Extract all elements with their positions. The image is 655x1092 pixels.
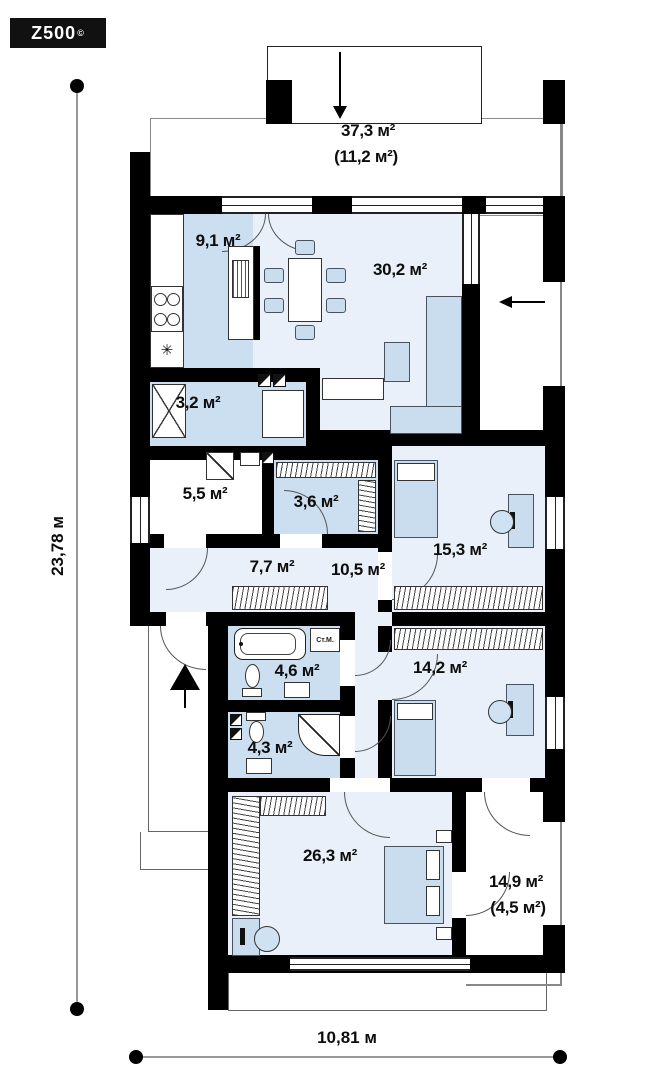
entrance-arrow-stem <box>339 52 341 106</box>
chair <box>326 268 346 283</box>
entrance-marker-stem <box>184 690 186 708</box>
wall <box>228 700 340 712</box>
room-label-living: 30,2 м² <box>373 260 427 280</box>
wall <box>228 778 330 792</box>
sink-icon <box>246 758 272 774</box>
room-label-hall: 7,7 м² <box>250 557 295 577</box>
room-label-master-bedroom: 26,3 м² <box>303 846 357 866</box>
porch-step-outline <box>140 832 208 870</box>
wall <box>340 686 355 716</box>
wall <box>262 460 274 544</box>
dimension-dot <box>70 79 84 93</box>
toilet-icon <box>245 664 260 688</box>
chair <box>295 240 315 255</box>
fridge-icon: ✳ <box>152 334 182 366</box>
toilet-tank <box>242 688 262 697</box>
riser-icon <box>230 728 242 740</box>
toilet-tank <box>246 712 266 721</box>
wall <box>462 284 480 432</box>
wall <box>206 612 340 626</box>
room-label-bedroom-1: 15,3 м² <box>433 540 487 560</box>
room-label-terrace-bottom: 14,9 м² <box>489 872 543 892</box>
wall <box>452 778 482 792</box>
wall <box>543 196 565 214</box>
room-label-pantry: 3,2 м² <box>176 393 221 413</box>
room-label-utility: 5,5 м² <box>183 484 228 504</box>
pillow <box>397 463 435 481</box>
side-entrance-arrow-stem <box>512 301 545 303</box>
wall <box>322 534 378 548</box>
nightstand <box>436 830 452 843</box>
office-chair <box>490 510 514 534</box>
riser-icon <box>230 714 242 726</box>
wall <box>462 196 486 214</box>
wall <box>452 792 466 872</box>
wardrobe-rail <box>394 586 543 610</box>
wall <box>543 386 565 432</box>
room-label-wardrobe: 3,6 м² <box>294 492 339 512</box>
wall <box>208 612 228 1010</box>
wall <box>266 80 292 124</box>
wardrobe-rail <box>232 796 260 916</box>
floor-plan: Z500© 23,78 м 10,81 м <box>0 0 655 1092</box>
pantry-unit <box>262 390 304 438</box>
riser-icon <box>273 374 286 387</box>
riser-icon <box>258 374 271 387</box>
pillow <box>397 703 433 720</box>
chair <box>326 298 346 313</box>
wall <box>392 612 565 626</box>
room-label-corridor: 10,5 м² <box>331 560 385 580</box>
side-entrance-arrow-icon <box>499 296 512 308</box>
bathtub-icon <box>234 628 306 660</box>
room-label-terrace-bottom-secondary: (4,5 м²) <box>490 898 546 918</box>
wall <box>452 918 466 955</box>
wall <box>130 152 150 214</box>
door-arc <box>484 792 530 836</box>
wardrobe-rail <box>232 586 328 610</box>
nightstand <box>436 927 452 940</box>
wall <box>130 612 166 626</box>
window <box>352 196 462 214</box>
wardrobe-rail <box>394 628 543 650</box>
dimension-dot <box>129 1050 143 1064</box>
window <box>486 196 543 214</box>
window <box>130 497 150 543</box>
shower-icon <box>298 714 340 756</box>
wall <box>150 534 164 548</box>
brand-logo-text: Z500 <box>31 23 76 44</box>
horizontal-dimension-line <box>136 1056 560 1058</box>
vertical-dimension-label: 23,78 м <box>48 516 68 576</box>
wall <box>543 214 565 282</box>
monitor-icon <box>240 928 245 945</box>
chair <box>295 325 315 340</box>
dimension-dot <box>70 1002 84 1016</box>
room-label-kitchen: 9,1 м² <box>196 231 241 251</box>
window <box>222 196 312 214</box>
brand-logo-mark: © <box>77 28 85 38</box>
room-label-terrace-top-secondary: (11,2 м²) <box>334 147 398 167</box>
wall <box>340 612 355 640</box>
washing-machine-icon: Ст.М. <box>310 628 340 652</box>
sink-icon <box>284 682 310 698</box>
wall <box>130 214 150 497</box>
room-label-terrace-top: 37,3 м² <box>341 121 395 141</box>
chair <box>264 298 284 313</box>
terrace-br-bottom-outline <box>466 984 562 986</box>
tv-cabinet <box>322 378 384 400</box>
kitchen-sink-icon <box>232 260 249 298</box>
wall <box>390 778 452 792</box>
dimension-dot <box>553 1050 567 1064</box>
wardrobe-rail <box>358 480 376 532</box>
window <box>462 214 480 284</box>
entrance-marker-icon <box>170 664 200 690</box>
entry-canopy <box>267 46 482 124</box>
boiler-icon <box>206 452 234 480</box>
wall <box>543 792 565 822</box>
pillow <box>426 886 440 916</box>
dining-table <box>288 258 322 322</box>
horizontal-dimension-label: 10,81 м <box>317 1028 377 1048</box>
office-chair <box>488 700 512 724</box>
kitchen-island-edge <box>254 246 260 340</box>
vertical-dimension-line <box>76 86 78 1008</box>
stove-icon <box>151 286 183 332</box>
wall <box>543 80 565 124</box>
wall <box>340 758 355 778</box>
coffee-table <box>384 342 410 382</box>
wall <box>378 446 392 552</box>
wall <box>206 534 280 548</box>
window <box>545 697 565 749</box>
room-label-bedroom-2: 14,2 м² <box>413 658 467 678</box>
wall <box>150 368 320 382</box>
wardrobe-rail <box>276 462 376 478</box>
wall <box>130 543 150 612</box>
sofa <box>390 406 462 434</box>
riser-icon <box>262 452 274 464</box>
room-label-wc: 4,3 м² <box>248 738 293 758</box>
wardrobe-rail <box>260 796 326 816</box>
sliding-door <box>290 957 470 971</box>
wall <box>312 196 352 214</box>
chair <box>264 268 284 283</box>
pillow <box>426 850 440 880</box>
brand-logo: Z500© <box>10 18 106 48</box>
entrance-arrow-down-icon <box>333 106 347 119</box>
window <box>545 497 565 549</box>
wall <box>378 600 392 612</box>
room-label-bathroom: 4,6 м² <box>275 661 320 681</box>
sink-icon <box>240 452 260 466</box>
terrace-bottom-outline <box>228 973 547 1011</box>
wall <box>530 778 565 792</box>
office-chair <box>254 926 280 952</box>
